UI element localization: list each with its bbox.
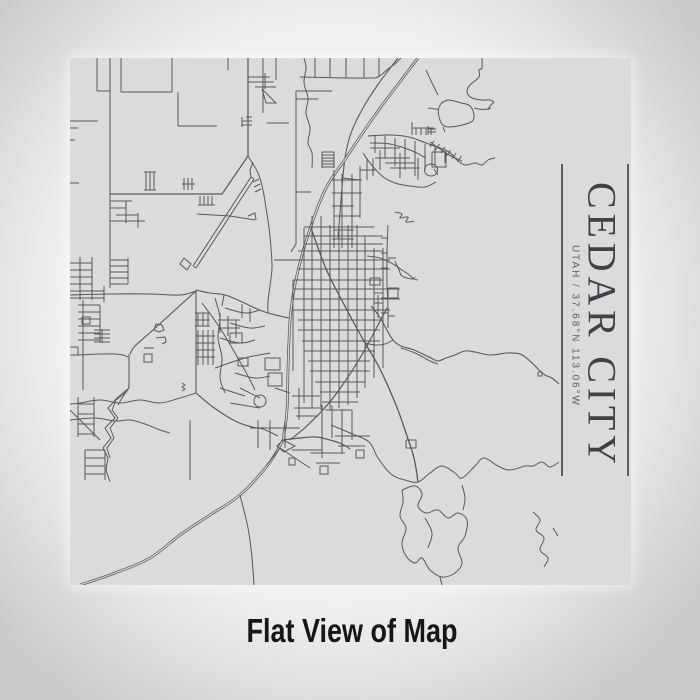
svg-text:UTAH / 37.68°N 113.06°W: UTAH / 37.68°N 113.06°W [570, 245, 581, 406]
svg-text:CEDAR CITY: CEDAR CITY [580, 182, 625, 464]
